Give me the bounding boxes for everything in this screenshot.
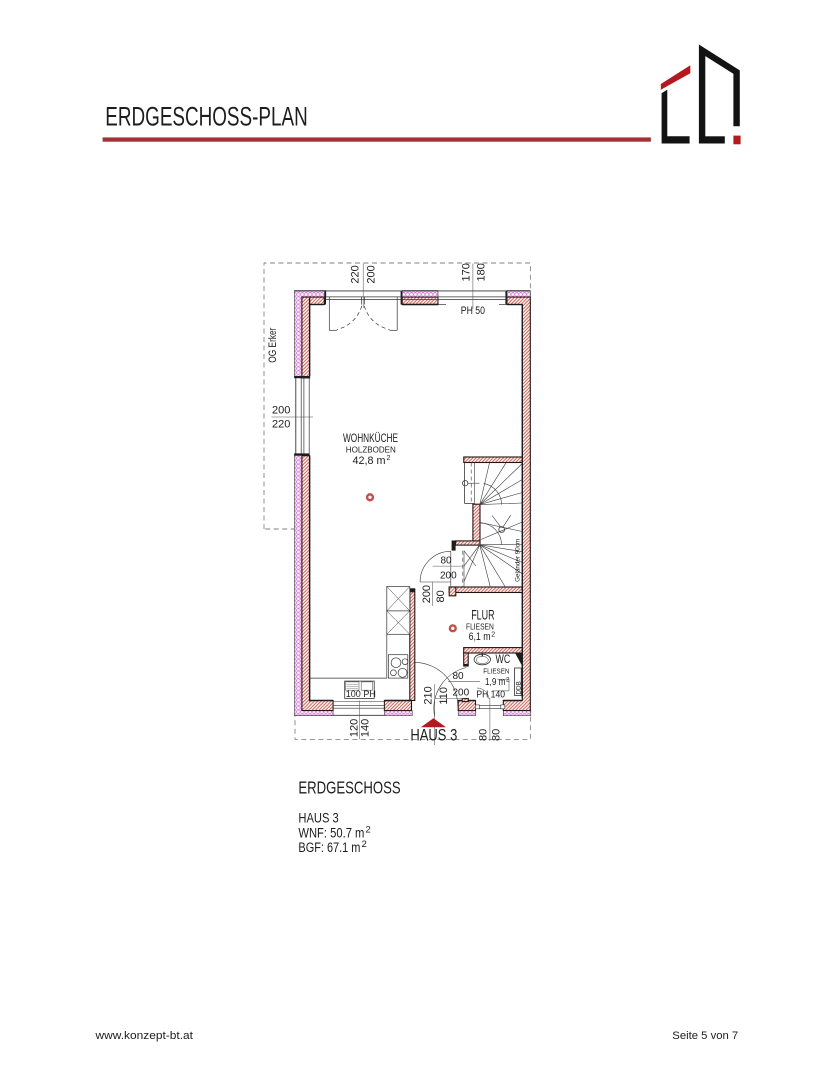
svg-text:200: 200 — [365, 265, 377, 283]
svg-text:2: 2 — [491, 631, 495, 638]
svg-text:180: 180 — [475, 263, 487, 281]
svg-text:FLUR: FLUR — [471, 607, 495, 622]
svg-text:200: 200 — [272, 405, 290, 417]
svg-text:80: 80 — [441, 555, 453, 566]
svg-text:110: 110 — [438, 687, 450, 705]
svg-text:80: 80 — [477, 729, 489, 741]
svg-text:100 PH: 100 PH — [346, 689, 376, 699]
svg-text:220: 220 — [272, 419, 290, 431]
svg-text:PH 50: PH 50 — [461, 305, 485, 317]
svg-text:42,8 m: 42,8 m — [353, 455, 386, 467]
svg-text:FLIESEN: FLIESEN — [483, 666, 509, 675]
svg-text:PH 140: PH 140 — [476, 688, 505, 700]
svg-text:220: 220 — [350, 265, 362, 283]
svg-text:ERDGESCHOSS: ERDGESCHOSS — [298, 778, 400, 798]
svg-text:HAUS 3: HAUS 3 — [298, 811, 338, 827]
svg-text:2: 2 — [362, 839, 367, 850]
svg-text:200: 200 — [440, 570, 457, 581]
svg-text:2: 2 — [366, 825, 371, 836]
svg-text:200: 200 — [421, 585, 433, 603]
svg-text:170: 170 — [461, 263, 473, 281]
svg-text:OG Erker: OG Erker — [267, 327, 279, 362]
svg-text:6,1 m: 6,1 m — [469, 631, 491, 643]
svg-text:DDB: DDB — [516, 681, 523, 694]
svg-text:80: 80 — [490, 729, 502, 741]
svg-text:WNF: 50.7 m: WNF: 50.7 m — [298, 825, 364, 841]
svg-text:210: 210 — [422, 686, 434, 704]
svg-text:2: 2 — [506, 677, 510, 684]
svg-text:HAUS 3: HAUS 3 — [410, 727, 457, 745]
svg-text:80: 80 — [435, 590, 447, 602]
svg-text:WC: WC — [496, 654, 511, 666]
svg-text:Geländer 90cm: Geländer 90cm — [515, 539, 522, 582]
svg-text:www.konzept-bt.at: www.konzept-bt.at — [94, 1030, 193, 1042]
svg-text:2: 2 — [387, 455, 391, 462]
svg-text:1,9 m: 1,9 m — [485, 677, 506, 688]
svg-text:BGF: 67.1 m: BGF: 67.1 m — [298, 840, 360, 856]
svg-text:200: 200 — [453, 688, 470, 699]
svg-text:WOHNKÜCHE: WOHNKÜCHE — [343, 431, 398, 445]
svg-text:Seite 5 von 7: Seite 5 von 7 — [672, 1030, 738, 1042]
svg-text:ERDGESCHOSS-PLAN: ERDGESCHOSS-PLAN — [105, 102, 307, 132]
svg-text:80: 80 — [453, 671, 465, 682]
svg-text:HOLZBODEN: HOLZBODEN — [346, 445, 396, 454]
svg-text:140: 140 — [360, 719, 372, 737]
